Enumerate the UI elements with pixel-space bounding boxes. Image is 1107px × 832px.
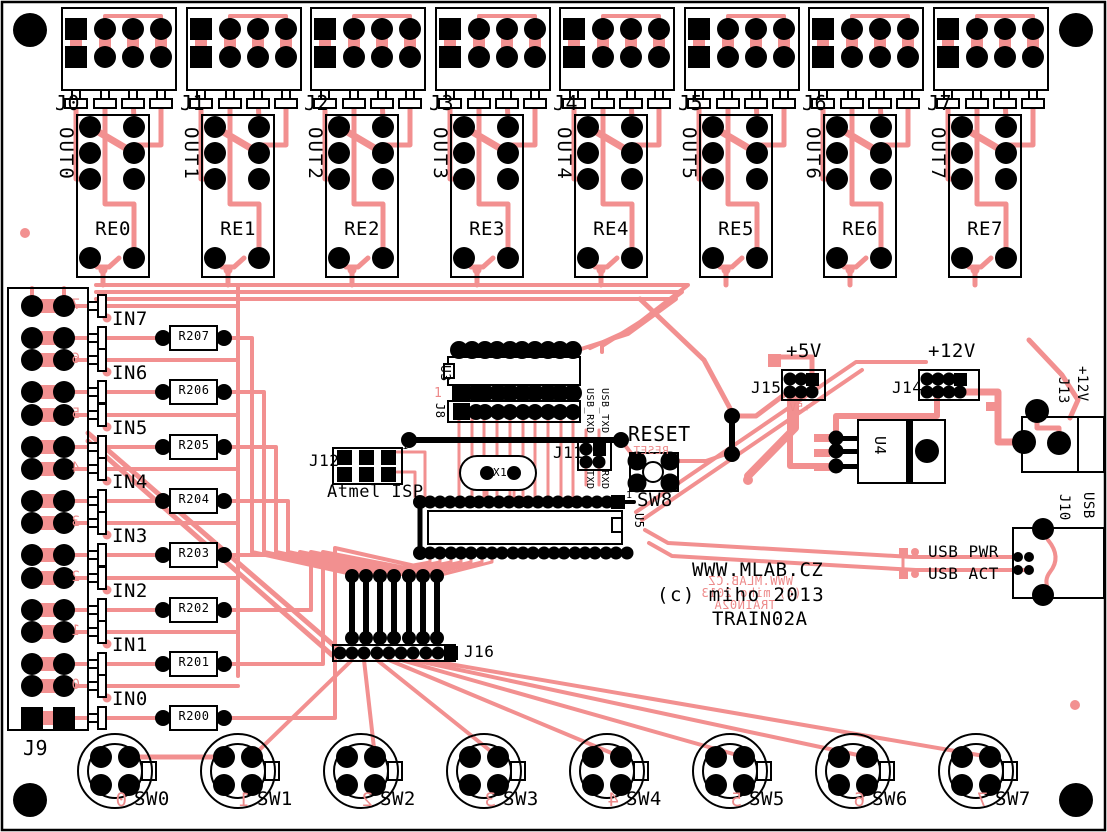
label-sw3-pin-mirror: 3 [484, 791, 496, 810]
label-sw7-pin-mirror: 7 [976, 791, 988, 810]
plus5-test-pad [768, 354, 781, 367]
label-sw5-pin-mirror: 5 [730, 791, 742, 810]
label-sw8: SW8 [637, 491, 673, 510]
label-j16: J16 [464, 644, 494, 660]
label-re3: RE3 [451, 220, 523, 239]
label-sw6-pin-mirror: 6 [853, 791, 865, 810]
label-re2: RE2 [326, 220, 398, 239]
label-in2: IN2 [112, 582, 148, 601]
label-out3: OUT3 [430, 127, 449, 181]
label-j0: J0 [55, 93, 80, 113]
label-j9-pin6-mirror: 6 [71, 352, 80, 366]
mcu-u5-outline [428, 511, 622, 544]
pcb-board: J0 J1 J2 J3 J4 J5 J6 J7 OUT0 OUT1 OUT2 O… [0, 0, 1107, 832]
label-sw1-pin-mirror: 1 [238, 791, 250, 810]
label-sw1: SW1 [257, 790, 293, 809]
label-plus12v: +12V [928, 342, 976, 361]
label-j9-pin0-mirror: 0 [71, 678, 80, 692]
label-re1: RE1 [202, 220, 274, 239]
label-j15: J15 [751, 380, 781, 396]
label-j4: J4 [553, 93, 578, 113]
input-terminals [88, 295, 106, 729]
label-r207: R207 [168, 330, 220, 342]
usb-pwr-led [899, 548, 908, 557]
connector-j6 [809, 8, 923, 285]
label-atmel-isp: Atmel ISP [327, 484, 424, 501]
label-sw0-pin-mirror: 0 [115, 791, 127, 810]
label-in0: IN0 [112, 690, 148, 709]
label-rxd: RXD [599, 470, 609, 490]
label-r200: R200 [168, 710, 220, 722]
header-j14-pads [921, 373, 968, 399]
label-r201: R201 [168, 656, 220, 668]
label-j13-voltage: +12V [1075, 366, 1089, 402]
label-in6: IN6 [112, 364, 148, 383]
label-sw4-pin-mirror: 4 [607, 791, 619, 810]
label-j9-pin5-mirror: 5 [71, 407, 80, 421]
label-j2: J2 [304, 93, 329, 113]
label-u4: U4 [872, 436, 887, 455]
label-r203: R203 [168, 547, 220, 559]
label-out7: OUT7 [928, 127, 947, 181]
relay-footprints [77, 115, 1021, 277]
serial-j11-pads [580, 443, 607, 469]
label-re0: RE0 [77, 220, 149, 239]
label-j13: J13 [1056, 377, 1070, 404]
label-txd: TXD [584, 470, 594, 490]
connector-j5 [685, 8, 799, 285]
label-out6: OUT6 [803, 127, 822, 181]
label-in4: IN4 [112, 473, 148, 492]
label-reset-mirror: RESET [633, 445, 669, 456]
label-sw3: SW3 [503, 790, 539, 809]
label-re7: RE7 [949, 220, 1021, 239]
label-j9-pin3-mirror: 3 [71, 515, 80, 529]
usb-act-led [899, 570, 908, 579]
label-j9-pin7-mirror: 7 [71, 298, 80, 312]
header-j16-pads [334, 646, 459, 660]
label-j9: J9 [23, 738, 48, 758]
usb-j10-outline [1013, 528, 1104, 598]
label-u3-pin1: 1 [434, 387, 442, 400]
label-re4: RE4 [575, 220, 647, 239]
label-plus5v-mirror: +5V [789, 402, 810, 413]
label-sw2: SW2 [380, 790, 416, 809]
label-r206: R206 [168, 384, 220, 396]
isp-j12-pads [337, 450, 396, 482]
connector-j2 [311, 8, 425, 285]
label-usb-pwr: USB PWR [928, 544, 999, 560]
label-in3: IN3 [112, 527, 148, 546]
label-sw7: SW7 [995, 790, 1031, 809]
label-sw6: SW6 [872, 790, 908, 809]
label-site: WWW.MLAB.CZ [692, 561, 823, 580]
label-usb-rxd: USB_RXD [584, 388, 594, 434]
label-out1: OUT1 [181, 127, 200, 181]
header-j15-pads [784, 373, 820, 399]
label-x1: X1 [493, 467, 507, 478]
label-out2: OUT2 [305, 127, 324, 181]
label-in7: IN7 [112, 310, 148, 329]
label-r204: R204 [168, 493, 220, 505]
label-re6: RE6 [824, 220, 896, 239]
label-j10-type: USB [1081, 492, 1095, 519]
label-usb-act: USB ACT [928, 566, 999, 582]
connector-j4 [560, 8, 674, 285]
label-plus5v: +5V [786, 342, 822, 361]
label-u5: U5 [633, 513, 645, 528]
label-j6: J6 [802, 93, 827, 113]
label-j1: J1 [180, 93, 205, 113]
label-sw5: SW5 [749, 790, 785, 809]
label-re5: RE5 [700, 220, 772, 239]
label-reset: RESET [628, 424, 691, 444]
label-out0: OUT0 [56, 127, 75, 181]
label-j10: J10 [1057, 494, 1071, 521]
label-out4: OUT4 [554, 127, 573, 181]
label-u5-pin1: 1 [626, 491, 633, 501]
label-r202: R202 [168, 602, 220, 614]
header-j8-pads [453, 403, 581, 420]
label-title: TRAIN02A [712, 610, 808, 629]
ic-u3-pads [450, 341, 582, 402]
label-j9-pin4-mirror: 4 [71, 461, 80, 475]
label-j5: J5 [678, 93, 703, 113]
label-in5: IN5 [112, 419, 148, 438]
connector-j7 [934, 8, 1048, 285]
ic-u3-outline [448, 357, 580, 385]
label-copyright: (c) miho 2013 [657, 586, 825, 605]
input-connector-j9 [8, 288, 106, 730]
label-j12-pin1: 1 [402, 442, 409, 452]
connector-j3 [436, 8, 550, 285]
label-sw4: SW4 [626, 790, 662, 809]
label-j9-pin2-mirror: 2 [71, 570, 80, 584]
connector-j0 [62, 8, 176, 285]
label-j11: J11 [553, 445, 583, 461]
label-j3: J3 [429, 93, 454, 113]
label-r205: R205 [168, 439, 220, 451]
label-sw0: SW0 [134, 790, 170, 809]
j16-jumper-wires [345, 569, 444, 645]
pcb-artwork [0, 0, 1107, 832]
label-sw2-pin-mirror: 2 [361, 791, 373, 810]
label-j8: J8 [434, 403, 446, 418]
label-out5: OUT5 [679, 127, 698, 181]
label-u3: U3 [438, 365, 451, 382]
label-in1: IN1 [112, 636, 148, 655]
label-j12: J12 [309, 453, 339, 469]
reset-sw8-pads [628, 452, 680, 493]
mcu-u5-pads [424, 495, 634, 560]
label-j14: J14 [892, 380, 922, 396]
label-j9-pin1-mirror: 1 [71, 624, 80, 638]
label-j7: J7 [927, 93, 952, 113]
connector-j1 [187, 8, 301, 285]
label-usb-txd: USB_TXD [599, 388, 609, 434]
